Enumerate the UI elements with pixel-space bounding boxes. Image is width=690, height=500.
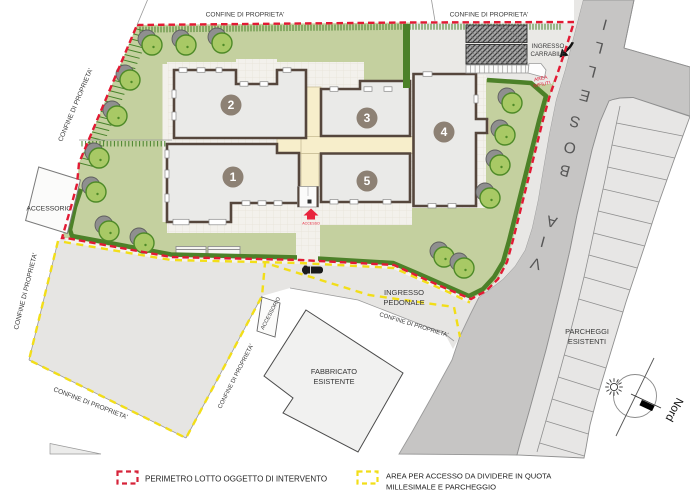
svg-text:ESISTENTE: ESISTENTE	[313, 377, 354, 386]
svg-text:INGRESSO: INGRESSO	[384, 288, 424, 297]
svg-text:CARRABILE: CARRABILE	[530, 51, 565, 58]
svg-text:FABBRICATO: FABBRICATO	[311, 367, 357, 376]
svg-text:PARCHEGGI: PARCHEGGI	[565, 327, 609, 336]
svg-text:PEDONALE: PEDONALE	[383, 298, 424, 307]
svg-text:INGRESSO: INGRESSO	[532, 43, 565, 50]
svg-text:3: 3	[364, 111, 371, 125]
svg-text:4: 4	[441, 125, 448, 139]
svg-text:1: 1	[230, 170, 237, 184]
svg-text:5: 5	[364, 174, 371, 188]
svg-text:ACCESSO: ACCESSO	[302, 222, 320, 226]
svg-text:AREA PER ACCESSO DA DIVIDERE I: AREA PER ACCESSO DA DIVIDERE IN QUOTA	[386, 472, 552, 481]
svg-text:ACCESSORIO: ACCESSORIO	[26, 206, 71, 213]
svg-text:ESISTENTI: ESISTENTI	[568, 337, 606, 346]
svg-text:CONFINE DI PROPRIETA': CONFINE DI PROPRIETA'	[450, 12, 529, 19]
svg-text:CONFINE DI PROPRIETA': CONFINE DI PROPRIETA'	[206, 12, 285, 19]
svg-text:PERIMETRO LOTTO OGGETTO DI INT: PERIMETRO LOTTO OGGETTO DI INTERVENTO	[145, 475, 327, 484]
svg-text:MILLESIMALE E PARCHEGGIO: MILLESIMALE E PARCHEGGIO	[386, 483, 496, 492]
svg-text:2: 2	[228, 98, 235, 112]
